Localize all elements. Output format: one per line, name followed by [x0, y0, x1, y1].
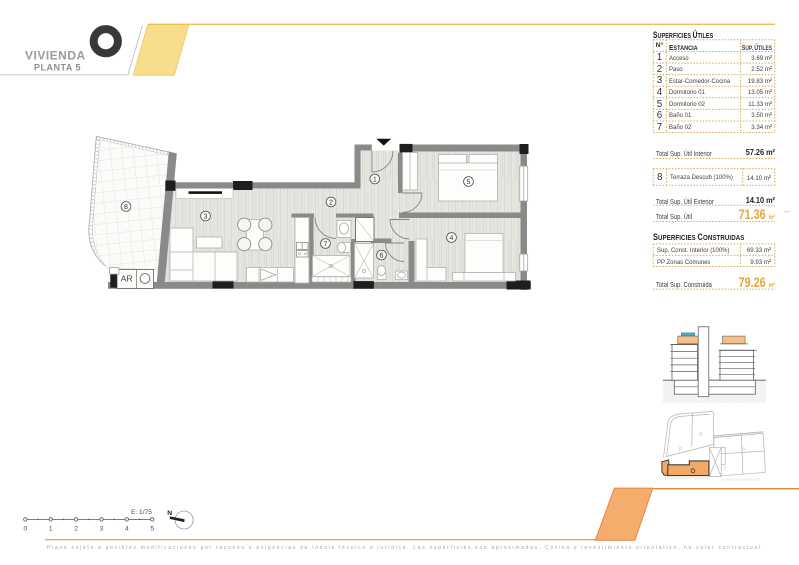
- svg-text:2: 2: [329, 200, 333, 207]
- svg-text:1: 1: [49, 526, 53, 533]
- svg-text:P: P: [679, 447, 683, 453]
- svg-text:N: N: [167, 510, 172, 517]
- svg-text:E: 1/75: E: 1/75: [131, 509, 152, 516]
- svg-text:8: 8: [124, 204, 128, 211]
- svg-text:6: 6: [380, 253, 384, 260]
- svg-text:3: 3: [204, 214, 208, 221]
- svg-text:7: 7: [324, 241, 328, 248]
- svg-text:0: 0: [23, 526, 27, 533]
- svg-text:1: 1: [373, 177, 377, 184]
- svg-text:4: 4: [450, 235, 454, 242]
- svg-text:AR: AR: [121, 274, 133, 284]
- svg-text:3: 3: [100, 526, 104, 533]
- svg-text:T: T: [723, 467, 727, 473]
- svg-text:4: 4: [125, 526, 129, 533]
- svg-text:2: 2: [74, 526, 78, 533]
- svg-text:R: R: [699, 432, 703, 438]
- svg-text:PLANTA 5: PLANTA 5: [34, 63, 81, 73]
- svg-text:S: S: [742, 447, 746, 453]
- svg-text:VIVIENDA: VIVIENDA: [25, 49, 86, 63]
- svg-text:5: 5: [150, 526, 154, 533]
- svg-text:5: 5: [467, 179, 471, 186]
